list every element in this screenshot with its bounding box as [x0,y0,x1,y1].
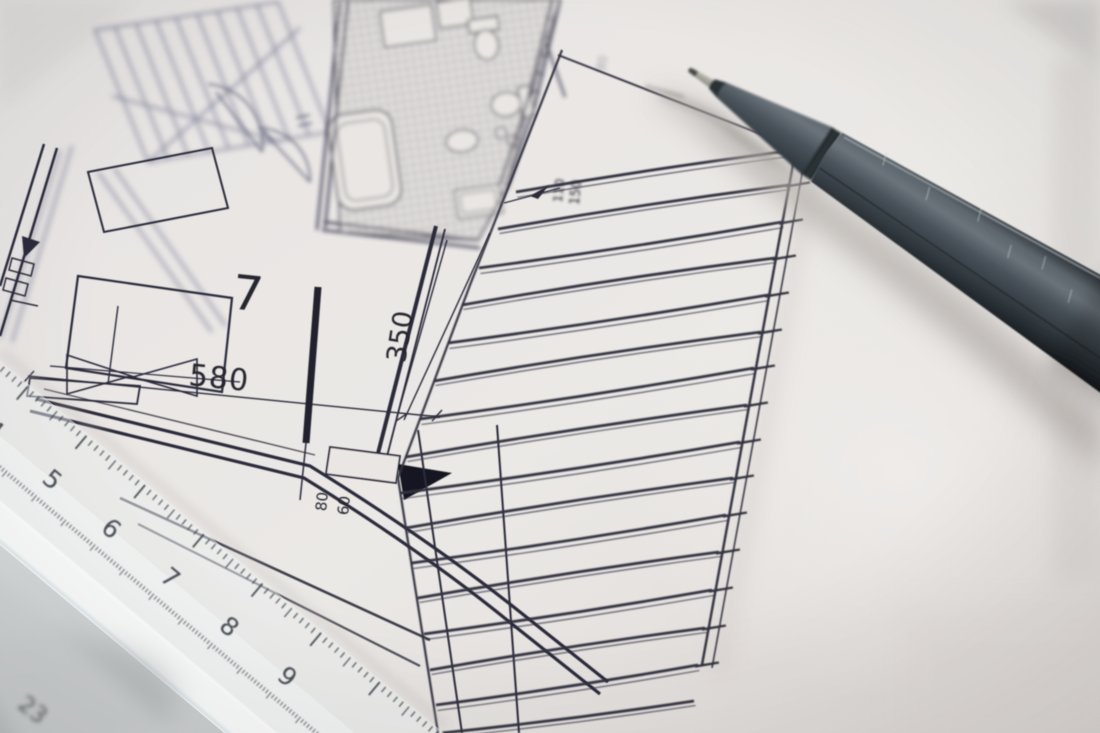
photo-floor-plan-scene: 80 7 580 350 80 60 110 150 [0,0,1100,733]
bathtub [327,108,404,212]
dimension-label-580: 580 [187,358,251,399]
room-number: 7 [230,265,266,324]
scene-canvas: 80 7 580 350 80 60 110 150 [0,0,1100,733]
dimension-label-80: 80 [312,491,332,512]
bathroom-niche [380,5,437,48]
washer [454,184,503,219]
dimension-label-60: 60 [334,495,354,516]
